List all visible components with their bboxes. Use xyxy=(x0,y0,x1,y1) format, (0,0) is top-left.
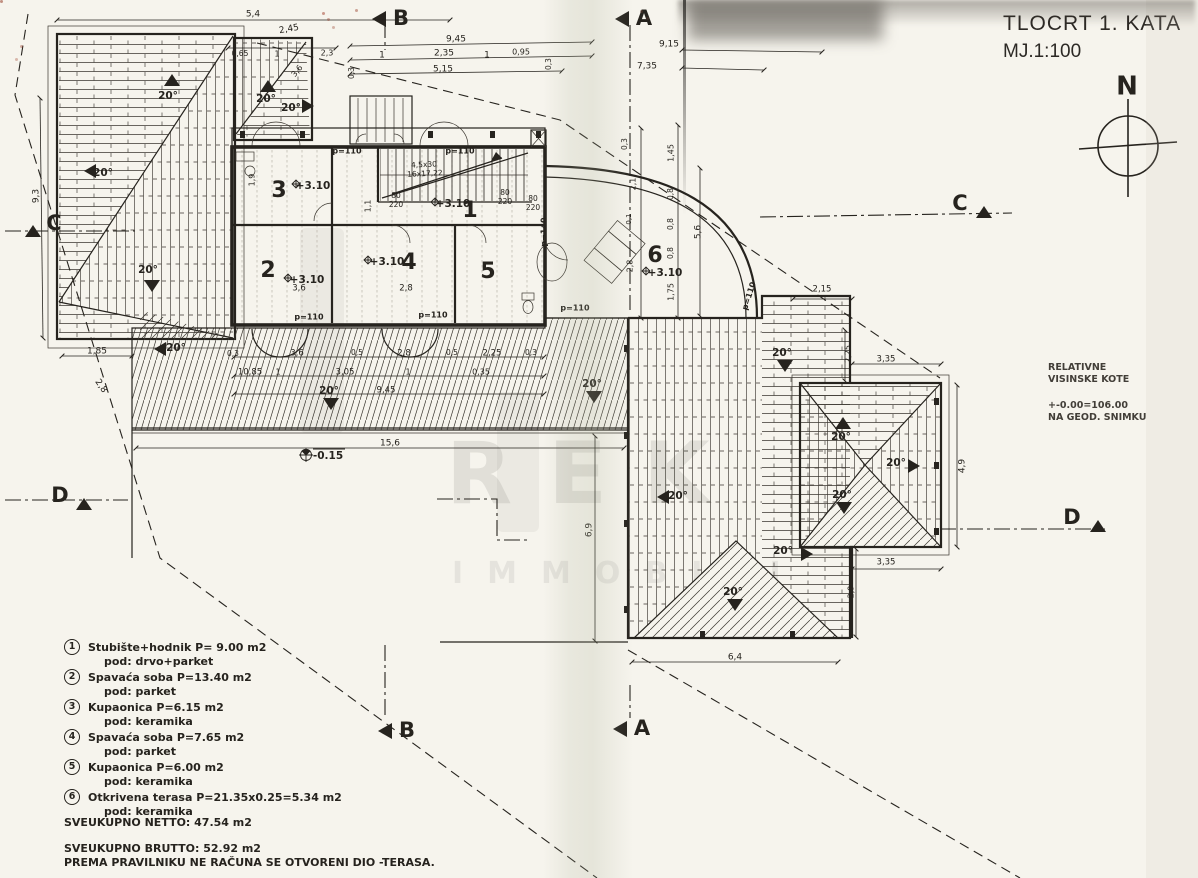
legend-item-number: 6 xyxy=(64,789,80,805)
plan-annotation: 2,8 xyxy=(92,378,109,396)
survey-note: RELATIVNE VISINSKE KOTE +-0.00=106.00 NA… xyxy=(1048,362,1146,424)
regulation-note: PREMA PRAVILNIKU NE RAČUNA SE OTVORENI D… xyxy=(64,856,435,869)
legend-item: 1Stubište+hodnik P= 9.00 m2 xyxy=(64,639,404,655)
plan-annotation: 5,4 xyxy=(246,10,261,20)
plan-annotation: 20° xyxy=(668,490,688,502)
survey-note-line: RELATIVNE xyxy=(1048,362,1146,374)
plan-annotation: 20° xyxy=(831,431,851,443)
plan-annotation: 1,75 xyxy=(667,283,676,301)
plan-annotation: 3,35 xyxy=(877,355,896,365)
plan-annotation: 20° xyxy=(886,457,906,469)
survey-note-line: +-0.00=106.00 xyxy=(1048,400,1146,412)
plan-annotation: 220 xyxy=(498,197,513,206)
plan-annotation: 3,6 xyxy=(290,349,304,359)
plan-annotation: 6 xyxy=(647,243,662,268)
plan-annotation: 0,3 xyxy=(347,67,356,79)
survey-note-line: NA GEOD. SNIMKU xyxy=(1048,412,1146,424)
plan-annotation: 0,5 xyxy=(351,348,363,357)
plan-annotation: p=110 xyxy=(294,313,324,322)
plan-annotation: 2,25 xyxy=(483,349,502,359)
room-legend: 1Stubište+hodnik P= 9.00 m2pod: drvo+par… xyxy=(64,638,404,818)
plan-annotation: 0,35 xyxy=(472,368,490,377)
plan-annotation: 0,8 xyxy=(666,188,675,200)
plan-annotation: 20° xyxy=(138,264,158,276)
legend-item-number: 3 xyxy=(64,699,80,715)
legend-item-number: 5 xyxy=(64,759,80,775)
legend-item-desc: Otkrivena terasa P=21.35x0.25=5.34 m2 xyxy=(88,791,342,804)
legend-item: 5Kupaonica P=6.00 m2 xyxy=(64,759,404,775)
total-brutto: SVEUKUPNO BRUTTO: 52.92 m2 xyxy=(64,842,435,855)
plan-annotation: 2 xyxy=(260,258,275,283)
plan-annotation: 9,15 xyxy=(659,40,679,50)
plan-annotation: 7,35 xyxy=(637,62,657,72)
legend-item: 2Spavaća soba P=13.40 m2 xyxy=(64,669,404,685)
plan-annotation: p=110 xyxy=(418,311,448,320)
scan-speckles xyxy=(0,0,3,3)
plan-annotation: 2,3 xyxy=(321,49,334,58)
plan-annotation: 20° xyxy=(93,167,113,179)
plan-annotation: 20° xyxy=(723,586,743,598)
plan-annotation: 9,3 xyxy=(32,189,42,203)
plan-annotation: 1 xyxy=(379,51,385,61)
plan-annotation: 15,6 xyxy=(380,439,400,449)
plan-annotation: +3.10 xyxy=(296,180,331,192)
legend-item-desc: Kupaonica P=6.15 m2 xyxy=(88,701,224,714)
plan-annotation: A xyxy=(634,716,651,740)
plan-annotation: 0,95 xyxy=(512,48,530,57)
legend-item-floor: pod: parket xyxy=(104,745,404,758)
plan-annotation: 220 xyxy=(389,200,404,209)
plan-annotation: 1 xyxy=(275,368,280,377)
legend-item-floor: pod: keramika xyxy=(104,715,404,728)
plan-annotation: 0,5 xyxy=(446,348,458,357)
stair-tower xyxy=(350,96,412,144)
legend-item-number: 4 xyxy=(64,729,80,745)
plan-annotation: 1 xyxy=(274,50,279,59)
legend-item-desc: Stubište+hodnik P= 9.00 m2 xyxy=(88,641,266,654)
plan-annotation: 6,4 xyxy=(728,653,743,663)
plan-annotation: 10,85 xyxy=(238,368,262,378)
plan-annotation: 2,8 xyxy=(399,284,413,294)
plan-annotation: 1,45 xyxy=(667,144,676,162)
plan-annotation: +3.10 xyxy=(648,267,683,279)
plan-annotation: 2,25 xyxy=(844,345,853,363)
legend-item-desc: Spavaća soba P=13.40 m2 xyxy=(88,671,252,684)
plan-annotation: -0.15 xyxy=(313,450,343,462)
plan-annotation: 2,35 xyxy=(434,49,454,59)
legend-items: 1Stubište+hodnik P= 9.00 m2pod: drvo+par… xyxy=(64,639,404,818)
scan-fold-shadow xyxy=(543,0,633,878)
plan-annotation: 0,3 xyxy=(525,348,537,357)
area-totals: SVEUKUPNO NETTO: 47.54 m2 SVEUKUPNO BRUT… xyxy=(64,816,435,869)
plan-annotation: D xyxy=(51,483,68,507)
plan-annotation: C xyxy=(952,191,967,215)
plan-annotation: 0,8 xyxy=(666,218,675,230)
legend-item-floor: pod: keramika xyxy=(104,775,404,788)
scanned-floor-plan-page: { "colors": {"ink": "#26231e", "paper": … xyxy=(0,0,1198,878)
legend-item-floor: pod: parket xyxy=(104,685,404,698)
legend-item: 3Kupaonica P=6.15 m2 xyxy=(64,699,404,715)
legend-item: 6Otkrivena terasa P=21.35x0.25=5.34 m2 xyxy=(64,789,404,805)
plan-annotation: p=110 xyxy=(445,147,475,156)
legend-item-desc: Kupaonica P=6.00 m2 xyxy=(88,761,224,774)
plan-annotation: 1 xyxy=(405,368,410,377)
plan-annotation: 2,45 xyxy=(278,23,299,36)
plan-annotation: 220 xyxy=(526,203,541,212)
legend-item-number: 1 xyxy=(64,639,80,655)
plan-annotation: 20° xyxy=(832,489,852,501)
plan-annotation: 3,05 xyxy=(336,368,355,378)
plan-annotation: 3 xyxy=(271,178,286,203)
plan-annotation: 80 xyxy=(500,188,510,197)
plan-annotation: 1,9 xyxy=(248,174,257,187)
plan-annotation: B xyxy=(393,6,409,30)
plan-annotation: 20° xyxy=(773,545,793,557)
plan-annotation: 20° xyxy=(772,347,792,359)
total-netto: SVEUKUPNO NETTO: 47.54 m2 xyxy=(64,816,435,829)
plan-annotation: 1 xyxy=(484,51,490,61)
plan-annotation: N xyxy=(1116,72,1138,102)
plan-annotation: 80 xyxy=(528,194,538,203)
plan-annotation: 20° xyxy=(158,90,178,102)
plan-annotation: 20° xyxy=(281,102,301,114)
plan-annotation: p=110 xyxy=(332,147,362,156)
survey-note-line: VISINSKE KOTE xyxy=(1048,374,1146,386)
plan-annotation: 16x17,22 xyxy=(407,168,443,179)
plan-annotation: 0,8 xyxy=(666,247,675,259)
legend-item-number: 2 xyxy=(64,669,80,685)
plan-annotation: C xyxy=(46,211,61,235)
scan-smudge xyxy=(688,0,883,40)
plan-annotation: 5,6 xyxy=(694,225,704,240)
scan-streak xyxy=(683,0,686,215)
plan-annotation: 2,9 xyxy=(847,586,856,599)
plan-annotation: 3,6 xyxy=(292,284,306,294)
plan-annotation: 20° xyxy=(256,93,276,105)
legend-item-desc: Spavaća soba P=7.65 m2 xyxy=(88,731,244,744)
plan-annotation: 9,45 xyxy=(377,386,396,396)
plan-annotation: 20° xyxy=(319,385,339,397)
plan-annotation: 3,35 xyxy=(877,558,896,568)
plan-annotation: 1,1 xyxy=(364,200,373,213)
plan-annotation: 5,15 xyxy=(433,65,453,75)
plan-annotation: +3.10 xyxy=(370,256,405,268)
left-roof xyxy=(48,26,244,348)
plan-annotation: 9,45 xyxy=(446,35,466,45)
plan-annotation: 4,9 xyxy=(958,459,968,474)
plan-annotation: 2,8 xyxy=(397,349,411,359)
legend-item-floor: pod: drvo+parket xyxy=(104,655,404,668)
plan-annotation: 2,15 xyxy=(813,285,832,295)
plan-annotation: 20° xyxy=(166,342,186,354)
plan-annotation: D xyxy=(1063,505,1080,529)
plan-annotation: A xyxy=(636,6,653,30)
plan-annotation: 0,65 xyxy=(232,49,249,58)
plan-annotation: 1,85 xyxy=(87,347,107,357)
legend-item: 4Spavaća soba P=7.65 m2 xyxy=(64,729,404,745)
plan-annotation: 80 xyxy=(391,191,401,200)
plan-annotation: +3.10 xyxy=(436,198,471,210)
plan-annotation: 0,3 xyxy=(227,349,239,358)
plan-annotation: 5 xyxy=(480,259,495,284)
scan-edge-shadow xyxy=(1146,0,1198,878)
